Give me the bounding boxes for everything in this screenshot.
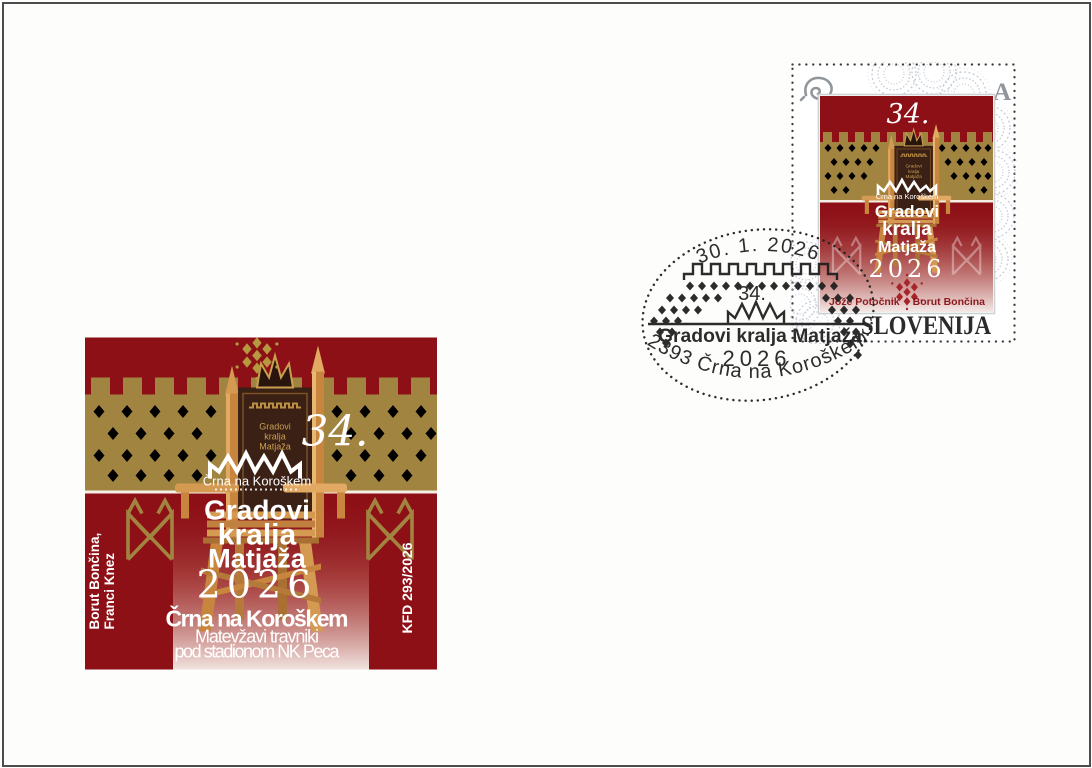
- stamp-location-small: Črna na Koroškem: [876, 192, 939, 201]
- stamp-letter-mark: A: [993, 79, 1011, 106]
- stamp-author-right: Borut Bončina: [913, 296, 985, 308]
- cachet-subtitle-2: pod stadionom NK Peca: [175, 642, 341, 662]
- cachet-location-small: Črna na Koroškem: [203, 474, 311, 489]
- cachet-edition: KFD 293/2026: [399, 542, 415, 633]
- cachet-author-2: Franci Knez: [102, 553, 117, 630]
- postmark-number: 34.: [738, 283, 766, 305]
- stamp-number: 34.: [887, 99, 930, 130]
- cachet-artwork: 34. Črna na Koroškem Gradovi kralja Matj…: [85, 337, 437, 670]
- postmark: 30. 1. 2026 34. Gradovi kralja Matjaža 2…: [612, 220, 892, 425]
- postmark-crown-zigzag: [728, 302, 784, 324]
- first-day-cover-scan: Gradovi kralja Matjaža: [0, 0, 1092, 768]
- cachet-author-1: Borut Bončina,: [87, 533, 102, 630]
- cachet-year: 2026: [197, 563, 318, 607]
- postmark-battlement: [684, 264, 837, 280]
- cachet-number: 34.: [302, 407, 369, 456]
